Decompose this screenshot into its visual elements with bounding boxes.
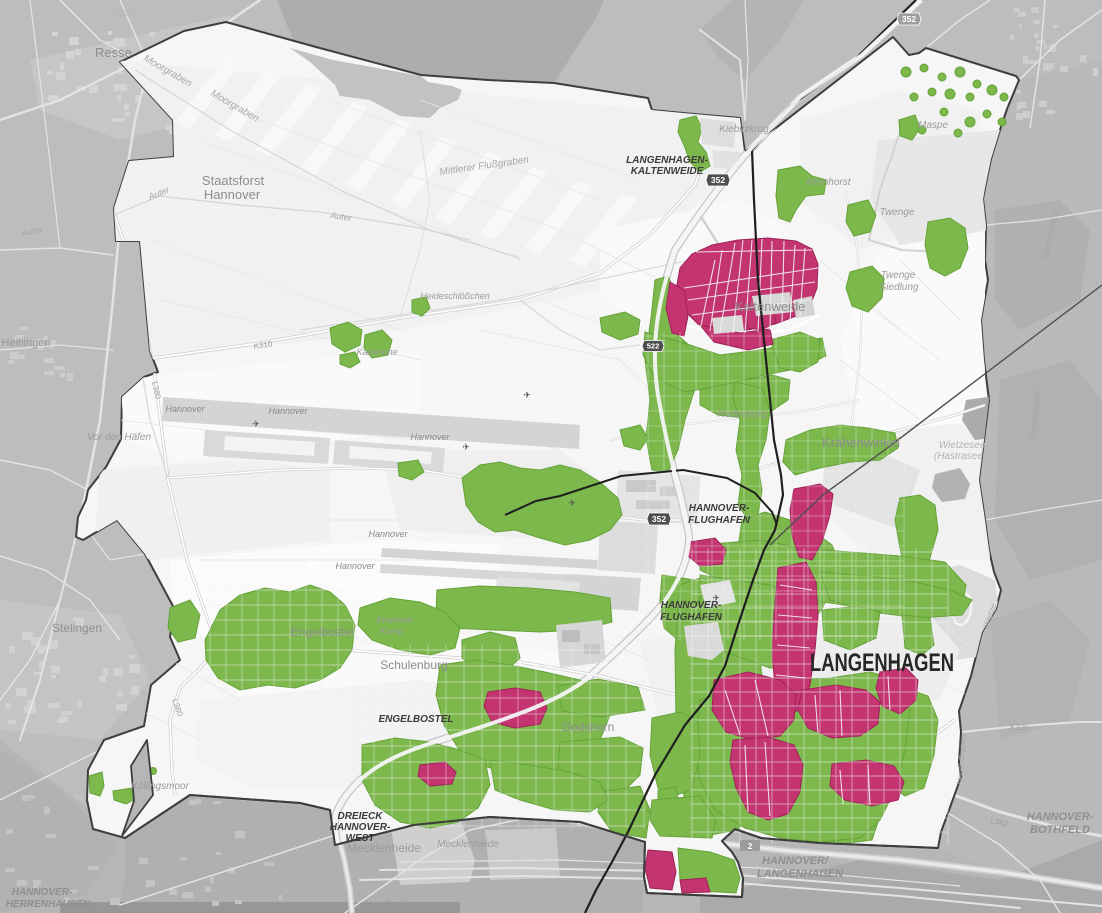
svg-text:Hannover: Hannover [165, 404, 205, 414]
svg-text:Hannover: Hannover [368, 529, 408, 539]
svg-text:HANNOVER-: HANNOVER- [12, 887, 73, 898]
svg-text:HANNOVER/: HANNOVER/ [762, 855, 830, 867]
svg-text:352: 352 [711, 175, 725, 185]
svg-text:Hannover: Hannover [268, 406, 308, 416]
svg-text:Krummer: Krummer [376, 615, 414, 625]
svg-text:Kaltenweide: Kaltenweide [735, 299, 806, 314]
svg-text:Staatsforst: Staatsforst [202, 173, 265, 188]
svg-text:LANGENHAGEN: LANGENHAGEN [810, 649, 954, 677]
svg-text:Schulenburg: Schulenburg [380, 658, 447, 672]
svg-text:LANGENHAGEN: LANGENHAGEN [757, 868, 844, 880]
svg-text:FLUGHAFEN: FLUGHAFEN [660, 612, 722, 623]
svg-text:352: 352 [652, 514, 666, 524]
svg-text:Kiebitzkrug: Kiebitzkrug [719, 124, 769, 135]
svg-text:Maspe: Maspe [918, 120, 948, 131]
svg-text:Krähenwinkel: Krähenwinkel [822, 435, 900, 450]
svg-text:522: 522 [647, 342, 660, 351]
svg-text:✈: ✈ [712, 593, 720, 603]
svg-text:Kananohe: Kananohe [356, 347, 397, 357]
svg-text:K325: K325 [1010, 723, 1029, 732]
svg-text:352: 352 [902, 14, 916, 24]
svg-text:Wietzesee: Wietzesee [939, 440, 986, 451]
svg-text:FLUGHAFEN: FLUGHAFEN [688, 515, 750, 526]
svg-text:BOTHFELD: BOTHFELD [1030, 824, 1090, 836]
svg-text:✈: ✈ [252, 419, 260, 429]
svg-text:HANNOVER-: HANNOVER- [689, 503, 750, 514]
svg-text:Rodenburg: Rodenburg [717, 409, 767, 420]
svg-text:✈: ✈ [568, 498, 576, 508]
svg-text:✈: ✈ [462, 442, 470, 452]
svg-text:Siedlung: Siedlung [880, 282, 919, 293]
svg-text:ENGELBOSTEL: ENGELBOSTEL [378, 714, 453, 725]
svg-text:LANGENHAGEN-: LANGENHAGEN- [626, 155, 708, 166]
svg-text:Köllingsmoor: Köllingsmoor [131, 781, 189, 792]
svg-text:(Hastrasee): (Hastrasee) [934, 451, 986, 462]
svg-text:Hannover: Hannover [204, 187, 261, 202]
svg-text:Kamp: Kamp [380, 626, 404, 636]
svg-text:KALTENWEIDE: KALTENWEIDE [631, 166, 704, 177]
svg-text:Nordhafen: Nordhafen [364, 899, 415, 911]
svg-text:Engelbostel: Engelbostel [291, 625, 354, 639]
svg-text:Mecklenheide: Mecklenheide [347, 841, 421, 855]
svg-text:2: 2 [748, 841, 753, 851]
svg-text:HANNOVER-: HANNOVER- [1027, 811, 1094, 823]
svg-text:Hannover: Hannover [335, 561, 375, 571]
svg-text:DREIECK: DREIECK [337, 811, 383, 822]
svg-text:Stelingen: Stelingen [52, 621, 102, 635]
svg-text:Godshorn: Godshorn [562, 720, 615, 734]
svg-text:Heideschlößchen: Heideschlößchen [420, 291, 490, 301]
svg-text:Twenge: Twenge [881, 270, 916, 281]
svg-text:✈: ✈ [523, 390, 531, 400]
svg-text:HERRENHAUSEN: HERRENHAUSEN [6, 899, 91, 910]
svg-text:Altenhorst: Altenhorst [804, 177, 851, 188]
svg-text:Vor den Häfen: Vor den Häfen [87, 432, 152, 443]
svg-text:Heitlingen: Heitlingen [2, 337, 51, 349]
svg-text:Mecklenheide: Mecklenheide [437, 839, 499, 850]
svg-text:Twenge: Twenge [880, 207, 915, 218]
svg-text:Hannover: Hannover [410, 432, 450, 442]
svg-text:HANNOVER-: HANNOVER- [330, 822, 391, 833]
svg-text:Resse: Resse [95, 45, 132, 60]
